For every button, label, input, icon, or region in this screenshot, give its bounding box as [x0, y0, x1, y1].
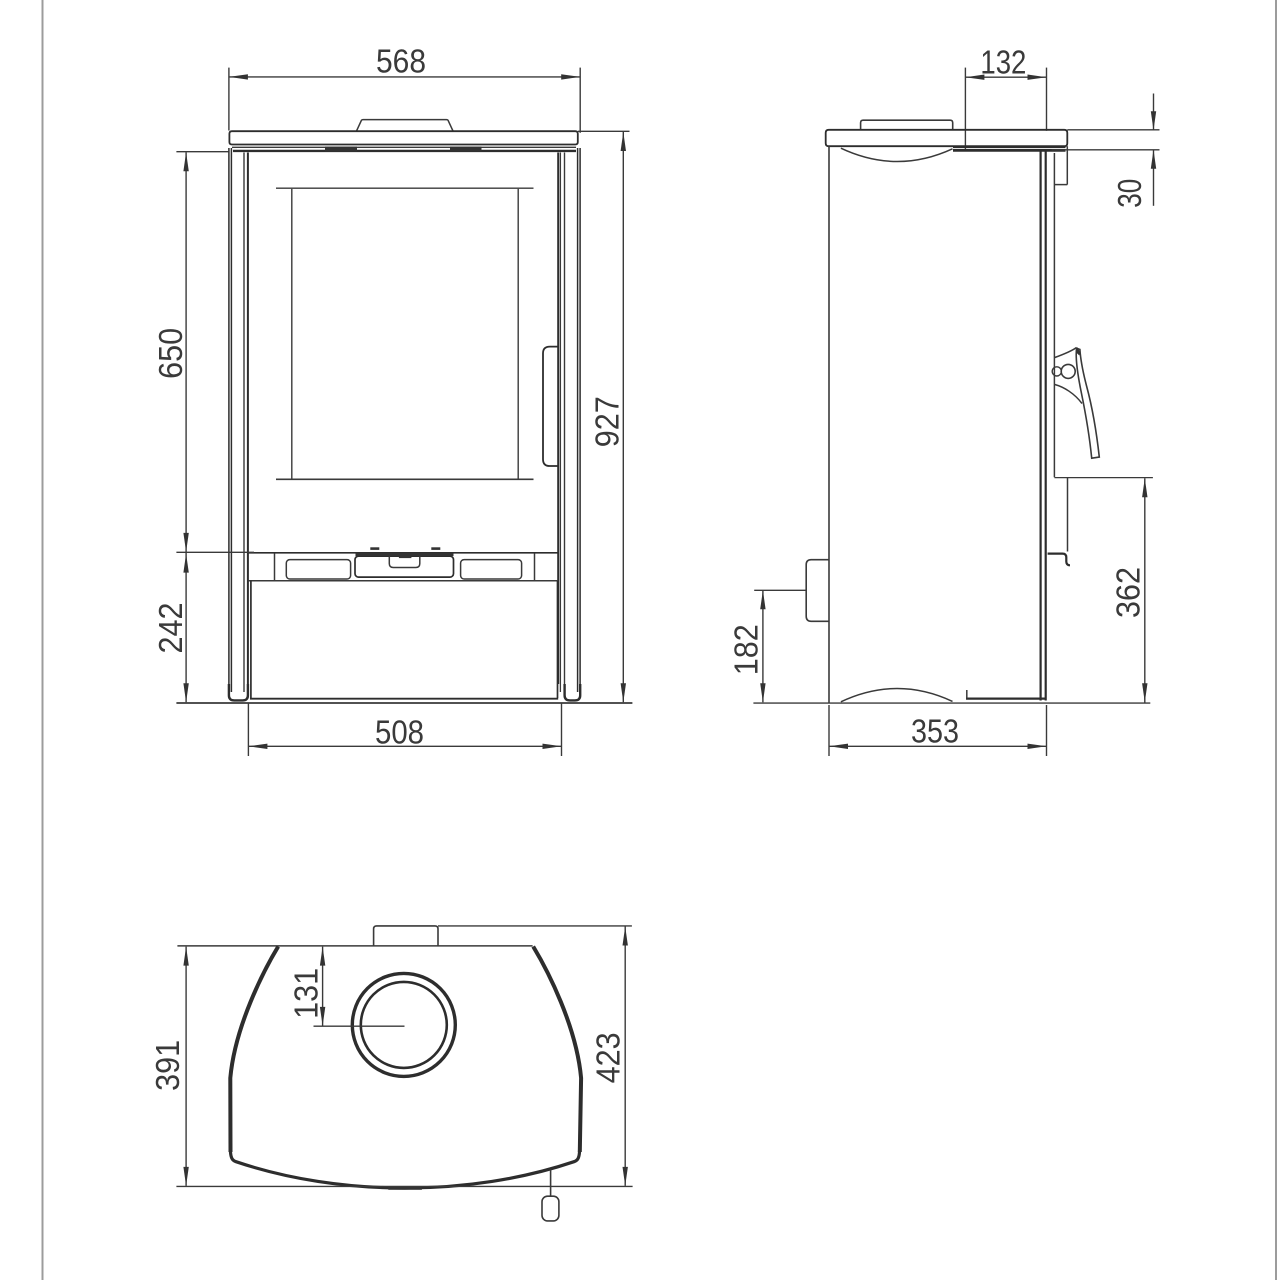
svg-text:131: 131	[288, 968, 325, 1019]
svg-text:650: 650	[152, 328, 189, 379]
svg-text:132: 132	[980, 44, 1026, 81]
svg-text:182: 182	[728, 624, 765, 675]
svg-text:353: 353	[911, 713, 959, 750]
svg-text:391: 391	[149, 1040, 186, 1091]
svg-text:423: 423	[590, 1032, 627, 1083]
svg-text:30: 30	[1111, 179, 1148, 208]
svg-text:362: 362	[1110, 567, 1147, 618]
svg-text:508: 508	[375, 714, 424, 751]
svg-text:568: 568	[376, 43, 426, 80]
svg-text:242: 242	[152, 603, 189, 654]
svg-text:927: 927	[588, 396, 625, 447]
